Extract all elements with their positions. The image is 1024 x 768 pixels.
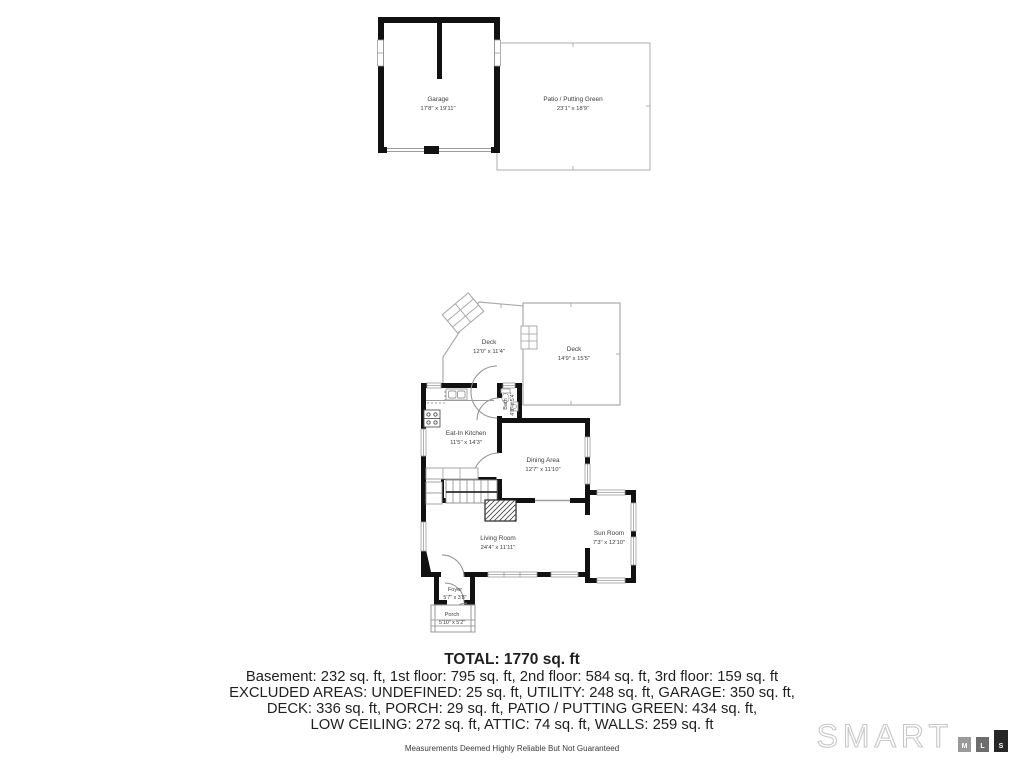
room-label-bath: Bath	[503, 398, 509, 410]
room-label-living: Living Room	[480, 535, 516, 542]
garage-walls	[378, 17, 501, 154]
logo-blocks: M L S	[958, 730, 1008, 752]
room-dims-patio: 23'1" x 18'9"	[557, 106, 589, 112]
summary-total: TOTAL: 1770 sq. ft	[0, 651, 1024, 669]
room-dims-garage: 17'8" x 19'11"	[420, 106, 455, 112]
room-dims-deck-left: 12'0" x 11'4"	[473, 349, 505, 355]
garage-level-plan: Garage 17'8" x 19'11" Patio / Putting Gr…	[378, 17, 651, 170]
room-dims-foyer: 5'7" x 3'8"	[443, 595, 466, 601]
deck-connector-stairs	[521, 326, 537, 349]
floorplan-page: Garage 17'8" x 19'11" Patio / Putting Gr…	[0, 0, 1024, 768]
main-level-plan: Deck 12'0" x 11'4" Deck 14'9" x 15'5" Ea…	[421, 293, 636, 632]
fireplace	[485, 500, 516, 521]
kitchen-fixtures	[424, 389, 494, 427]
logo-brand-text: SMART	[817, 721, 953, 752]
porch-outline	[431, 605, 475, 632]
room-label-porch: Porch	[445, 612, 460, 618]
room-dims-porch: 5'10" x 5'2"	[439, 620, 465, 626]
room-label-dining: Dining Area	[526, 457, 559, 464]
garage-window-left	[378, 40, 384, 66]
summary-line-1: Basement: 232 sq. ft, 1st floor: 795 sq.…	[0, 669, 1024, 685]
logo-block-m: M	[958, 737, 971, 752]
room-label-deck-right: Deck	[567, 346, 582, 353]
garage-window-right	[495, 40, 501, 66]
smartmls-logo: SMART M L S	[817, 721, 1008, 752]
deck-right-outline	[523, 303, 620, 405]
room-dims-dining: 12'7" x 11'10"	[525, 467, 560, 473]
room-label-sunroom: Sun Room	[594, 530, 624, 537]
interior-stairs	[426, 468, 497, 504]
room-dims-sunroom: 7'3" x 12'10"	[593, 540, 625, 546]
room-dims-living: 24'4" x 11'11"	[481, 545, 516, 551]
room-label-deck-left: Deck	[482, 339, 497, 346]
room-dims-kitchen: 11'5" x 14'3"	[450, 440, 482, 446]
logo-block-s: S	[994, 730, 1008, 752]
logo-block-l: L	[976, 737, 989, 752]
room-label-garage: Garage	[427, 96, 449, 103]
summary-line-2: EXCLUDED AREAS: UNDEFINED: 25 sq. ft, UT…	[0, 685, 1024, 701]
room-label-foyer: Foyer	[448, 587, 462, 593]
summary-line-3: DECK: 336 sq. ft, PORCH: 29 sq. ft, PATI…	[0, 701, 1024, 717]
room-label-patio: Patio / Putting Green	[543, 96, 603, 103]
room-label-kitchen: Eat-In Kitchen	[446, 430, 487, 437]
room-dims-deck-right: 14'9" x 15'5"	[558, 356, 590, 362]
room-dims-bath: 4'9" x 5'4"	[510, 392, 516, 415]
